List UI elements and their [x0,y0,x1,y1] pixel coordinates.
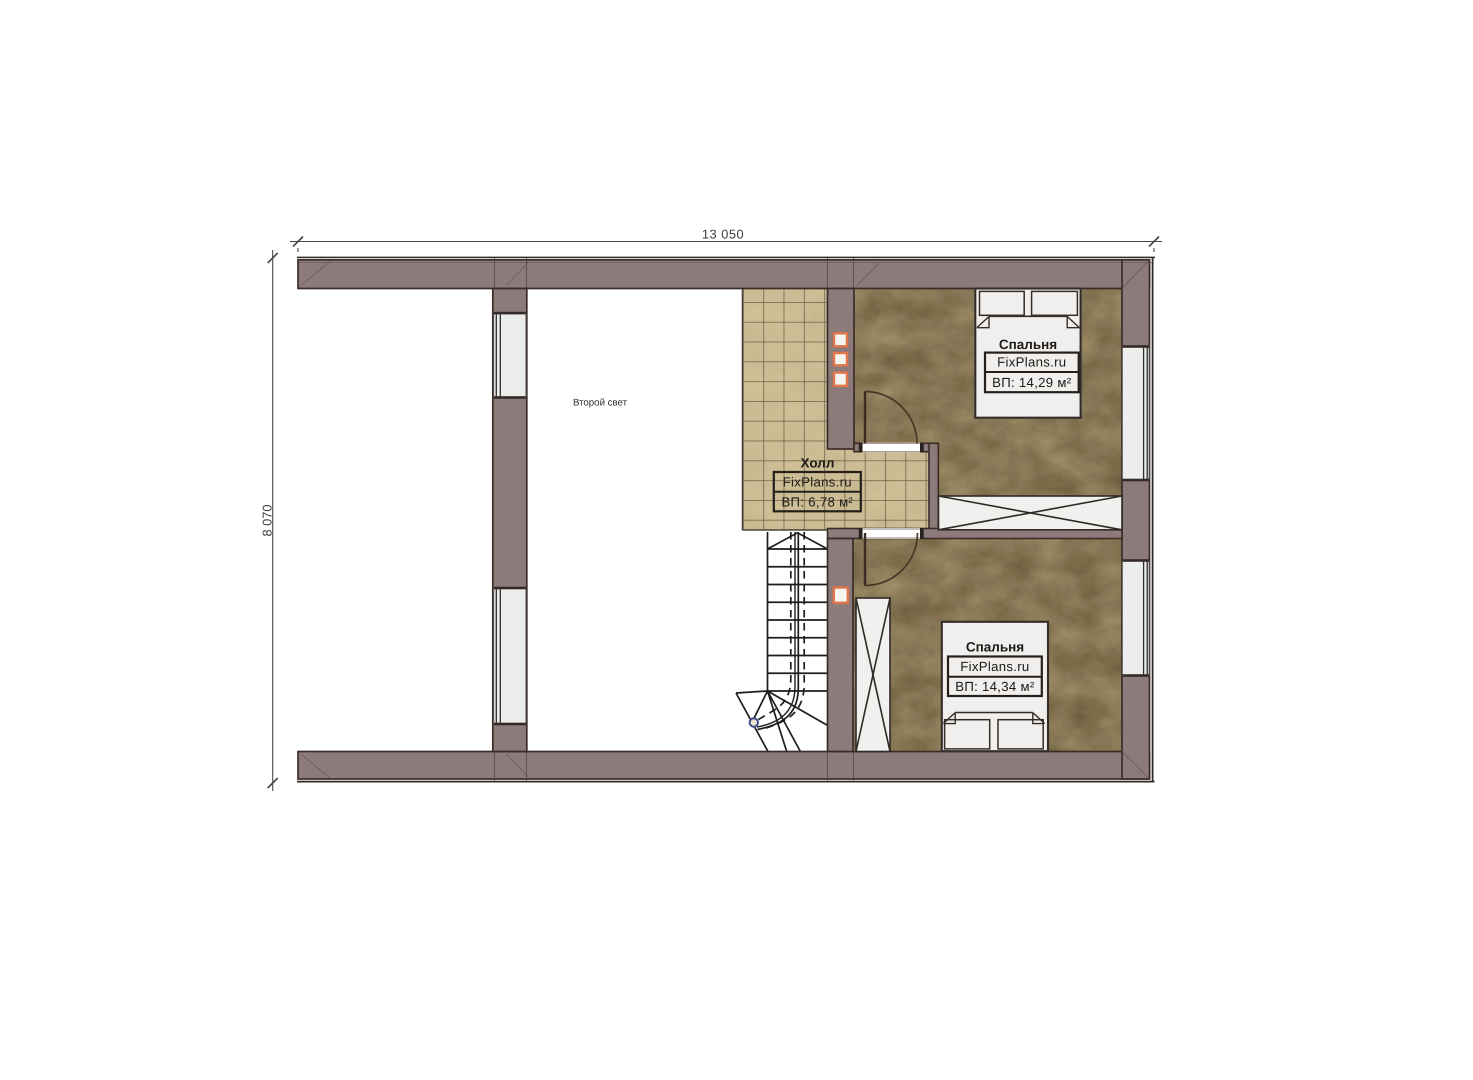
svg-text:Холл: Холл [801,456,835,471]
svg-text:Второй свет: Второй свет [573,398,628,409]
svg-text:FixPlans.ru: FixPlans.ru [783,475,852,490]
svg-text:Спальня: Спальня [966,640,1024,655]
svg-text:ВП: 14,29 м²: ВП: 14,29 м² [992,375,1072,390]
svg-text:8 070: 8 070 [260,504,275,536]
svg-text:Спальня: Спальня [999,337,1057,352]
svg-text:ВП: 6,78 м²: ВП: 6,78 м² [781,495,853,510]
svg-text:ВП: 14,34 м²: ВП: 14,34 м² [955,679,1035,694]
svg-text:13 050: 13 050 [702,227,744,242]
svg-text:FixPlans.ru: FixPlans.ru [997,355,1066,370]
svg-text:FixPlans.ru: FixPlans.ru [960,659,1029,674]
